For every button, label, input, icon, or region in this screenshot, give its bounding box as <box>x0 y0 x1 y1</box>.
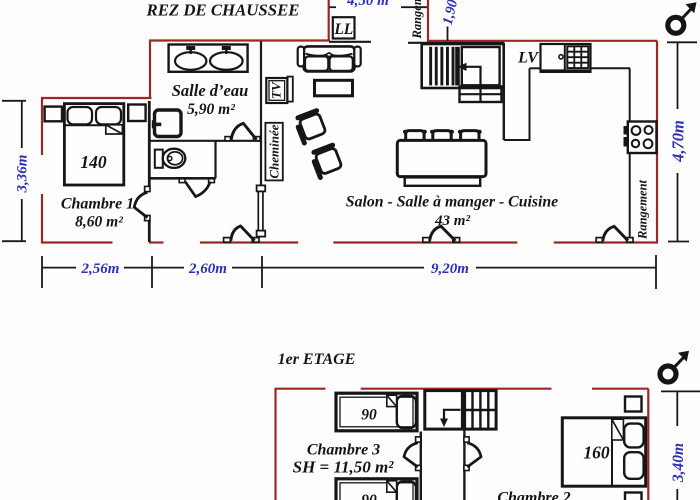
svg-text:Salon - Salle à manger - Cuisi: Salon - Salle à manger - Cuisine <box>346 194 558 211</box>
svg-text:140: 140 <box>80 152 107 172</box>
svg-text:90: 90 <box>361 407 377 424</box>
svg-text:Rangement: Rangement <box>410 0 424 40</box>
svg-text:8,60 m²: 8,60 m² <box>75 214 123 231</box>
svg-text:Rangement: Rangement <box>636 179 650 240</box>
svg-text:5,90 m²: 5,90 m² <box>187 101 235 118</box>
svg-text:LL: LL <box>333 21 353 38</box>
svg-text:1er ETAGE: 1er ETAGE <box>278 351 356 368</box>
svg-text:4,70m: 4,70m <box>669 120 688 163</box>
svg-text:SH = 11,50 m²: SH = 11,50 m² <box>293 458 395 477</box>
svg-text:REZ DE CHAUSSEE: REZ DE CHAUSSEE <box>146 1 300 20</box>
svg-text:90: 90 <box>361 492 377 500</box>
svg-text:9,20m: 9,20m <box>431 261 469 277</box>
svg-text:4,50 m: 4,50 m <box>346 0 389 9</box>
svg-text:3,40m: 3,40m <box>670 443 687 483</box>
svg-text:LV: LV <box>517 50 539 67</box>
svg-text:2,60m: 2,60m <box>188 261 227 277</box>
svg-text:Chambre 2: Chambre 2 <box>497 490 570 500</box>
svg-text:160: 160 <box>583 443 610 463</box>
svg-text:Chambre 3: Chambre 3 <box>307 442 380 459</box>
svg-text:TV: TV <box>269 81 284 99</box>
svg-text:Cheminée: Cheminée <box>266 124 281 178</box>
svg-text:2,56m: 2,56m <box>81 261 120 277</box>
svg-text:Salle d’eau: Salle d’eau <box>172 81 249 100</box>
svg-text:Chambre 1: Chambre 1 <box>61 196 134 213</box>
svg-text:3,36m: 3,36m <box>15 155 31 194</box>
